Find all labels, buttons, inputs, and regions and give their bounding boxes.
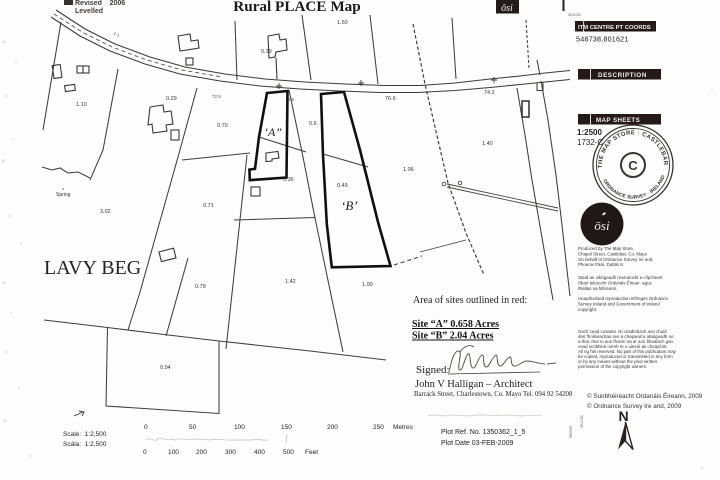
svg-text:On behalf of Ordnance Survey I: On behalf of Ordnance Survey Ire and, <box>578 257 653 262</box>
svg-text:Barrack Street, Charlestown, C: Barrack Street, Charlestown, Co. Mayo Te… <box>414 391 573 398</box>
svg-text:Produced by The Map Store,: Produced by The Map Store, <box>578 246 634 251</box>
svg-text:permission of the copyright ow: permission of the copyright owners. <box>578 364 647 369</box>
svg-text:Survey Ireland and Government: Survey Ireland and Government of Ireland <box>578 301 660 306</box>
svg-text:copyright.: copyright. <box>578 307 597 312</box>
svg-text:301033: 301033 <box>568 13 581 17</box>
svg-text:200: 200 <box>196 449 207 456</box>
svg-text:Revised 2006: Revised 2006 <box>75 0 125 7</box>
svg-text:Levelled: Levelled <box>75 8 103 15</box>
svg-text:Spring: Spring <box>56 192 71 198</box>
svg-text:Plot Ref. No. 1350362_1_5: Plot Ref. No. 1350362_1_5 <box>441 429 526 436</box>
svg-text:Phoenix Park, Dublin 8.: Phoenix Park, Dublin 8. <box>578 262 624 267</box>
svg-text:ōsi: ōsi <box>594 218 610 233</box>
svg-text:·: · <box>236 70 238 75</box>
svg-text:0.94: 0.94 <box>160 365 171 371</box>
svg-text:0.39: 0.39 <box>261 49 272 55</box>
svg-text:‘B’: ‘B’ <box>341 198 358 213</box>
svg-text:N: N <box>619 408 629 424</box>
svg-text:1.06: 1.06 <box>403 167 414 173</box>
svg-text:300: 300 <box>225 449 236 456</box>
svg-text:Signed:: Signed: <box>416 364 450 376</box>
svg-text:548738,801621: 548738,801621 <box>576 35 629 44</box>
svg-text:‘A”: ‘A” <box>264 125 282 139</box>
svg-text:Area of sites outlined in red:: Area of sites outlined in red: <box>413 295 527 306</box>
svg-text:0: 0 <box>143 449 147 456</box>
svg-text:DESCRIPTION: DESCRIPTION <box>598 72 647 79</box>
svg-text:250: 250 <box>373 424 384 431</box>
svg-text:0.36: 0.36 <box>283 177 294 183</box>
svg-text:400: 400 <box>254 449 265 456</box>
svg-text:1.42: 1.42 <box>285 279 296 285</box>
svg-text:1.40: 1.40 <box>482 141 493 147</box>
svg-text:1.50: 1.50 <box>337 20 348 26</box>
svg-text:ITM CENTRE PT COORDS: ITM CENTRE PT COORDS <box>578 25 651 31</box>
svg-text:Rural PLACE Map: Rural PLACE Map <box>233 0 360 15</box>
svg-text:Sharí telerecht Ordenáis Éi: Sharí telerecht Ordenáis Éirean· agus <box>578 280 653 285</box>
svg-text:0.79: 0.79 <box>195 284 206 290</box>
svg-text:0: 0 <box>144 424 148 431</box>
svg-text:Scale: 1:2,500: Scale: 1:2,500 <box>63 431 107 438</box>
svg-text:990091: 990091 <box>569 425 573 438</box>
svg-text:ōsi: ōsi <box>501 3 513 14</box>
svg-text:150: 150 <box>281 424 292 431</box>
svg-text:0.49: 0.49 <box>337 183 348 189</box>
svg-text:Unauthorised reproduction infr: Unauthorised reproduction infringes Ordn… <box>578 296 669 301</box>
svg-text:3.02: 3.02 <box>100 209 111 215</box>
svg-text:c: c <box>62 186 64 191</box>
svg-text:Chapel Street, Castlebar, Co.: Chapel Street, Castlebar, Co. Mayo <box>578 251 648 256</box>
svg-text:© Ordnance Survey Ire and, 200: © Ordnance Survey Ire and, 2009 <box>587 402 682 410</box>
svg-text:1:2500: 1:2500 <box>577 128 602 137</box>
svg-text:Feet: Feet <box>305 449 318 456</box>
svg-text:72.5: 72.5 <box>212 94 221 99</box>
svg-text:200: 200 <box>327 424 338 431</box>
svg-text:Rialtas na hÉireann,: Rialtas na hÉireann, <box>578 286 618 291</box>
svg-text:301233: 301233 <box>580 415 584 428</box>
svg-text:0.29: 0.29 <box>166 96 177 102</box>
svg-text:74.2: 74.2 <box>484 90 495 96</box>
svg-text:Plot Date 03-FEB-2009: Plot Date 03-FEB-2009 <box>441 440 513 447</box>
svg-text:1.00: 1.00 <box>362 282 373 288</box>
svg-text:John V Halligan – Architect: John V Halligan – Architect <box>415 379 533 390</box>
svg-text:50: 50 <box>189 424 197 431</box>
svg-text:Site “A” 0.658 Acres: Site “A” 0.658 Acres <box>412 319 499 330</box>
svg-text:1.10: 1.10 <box>76 102 87 108</box>
svg-text:Scála: 1:2,500: Scála: 1:2,500 <box>63 441 107 448</box>
svg-text:0.70: 0.70 <box>217 123 228 129</box>
svg-text:Metres: Metres <box>393 424 414 431</box>
svg-text:0.71: 0.71 <box>203 203 214 209</box>
svg-text:76.6: 76.6 <box>385 96 396 102</box>
svg-text:LAVY BEG: LAVY BEG <box>44 257 141 279</box>
svg-text:4.5: 4.5 <box>288 97 295 102</box>
svg-text:Site “B” 2.04 Acres: Site “B” 2.04 Acres <box>412 331 494 342</box>
svg-text:100: 100 <box>168 449 179 456</box>
svg-text:Staíd an oibrigeadh rearraío: Staíd an oibrigeadh rearraíocht e clí… <box>578 275 663 280</box>
svg-text:MAP SHEETS: MAP SHEETS <box>596 117 640 124</box>
svg-text:0.6: 0.6 <box>309 121 317 127</box>
svg-text:© Suirbhéireacht Ordanáis Éire: © Suirbhéireacht Ordanáis Éireann, 2009 <box>587 391 703 400</box>
svg-text:C: C <box>628 158 638 173</box>
svg-text:500: 500 <box>283 449 294 456</box>
svg-text:100: 100 <box>234 424 245 431</box>
